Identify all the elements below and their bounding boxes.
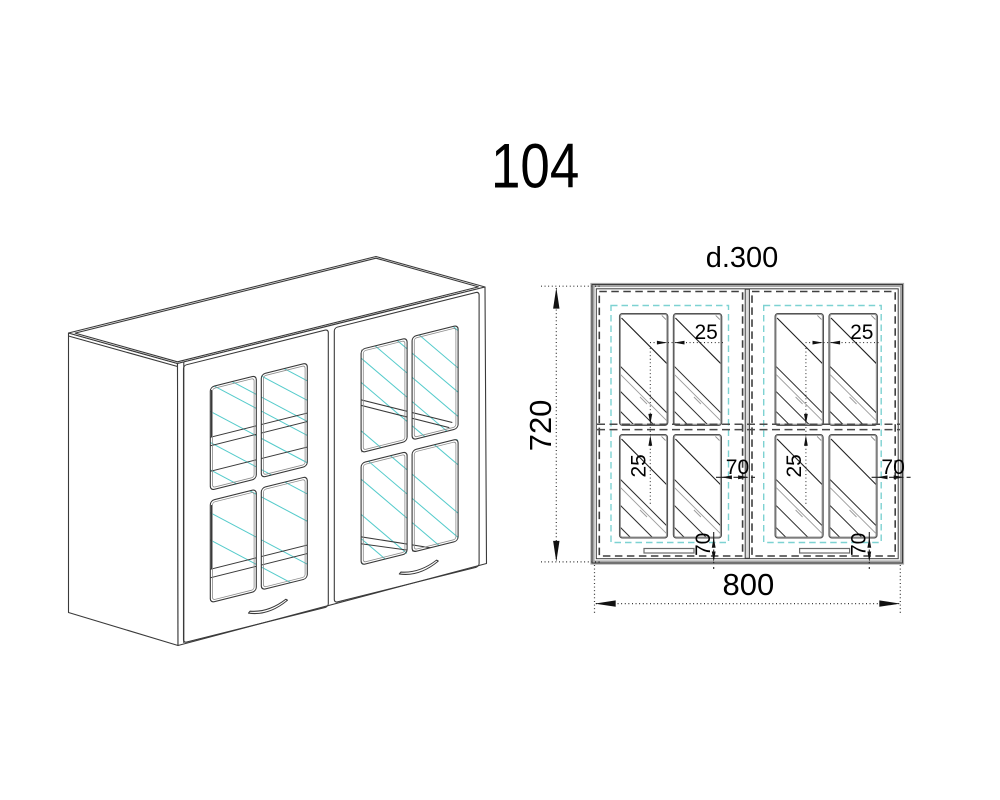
svg-text:720: 720 [523, 400, 558, 452]
svg-text:d.300: d.300 [706, 242, 779, 274]
svg-text:70: 70 [692, 533, 715, 556]
svg-text:70: 70 [848, 533, 871, 556]
svg-text:25: 25 [850, 321, 873, 344]
svg-text:104: 104 [491, 131, 579, 201]
svg-text:25: 25 [695, 321, 718, 344]
svg-text:70: 70 [726, 456, 749, 479]
svg-text:25: 25 [628, 454, 651, 477]
svg-text:800: 800 [723, 567, 775, 602]
svg-text:70: 70 [881, 456, 904, 479]
svg-text:25: 25 [783, 454, 806, 477]
